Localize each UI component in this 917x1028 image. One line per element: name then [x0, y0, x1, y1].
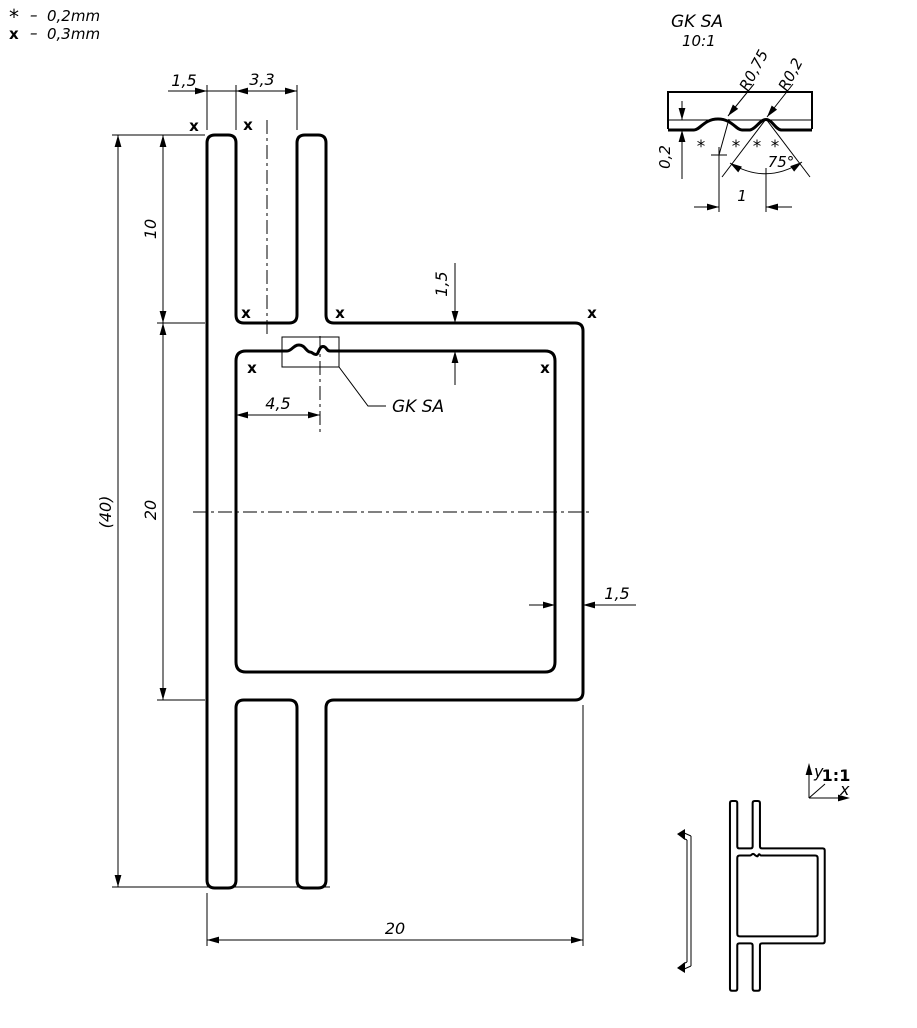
- dim-leg-height: 10: [141, 219, 160, 239]
- corner-mark: x: [189, 117, 199, 135]
- dim-detail-position: 4,5: [265, 394, 290, 413]
- dim-slot-width: 3,3: [249, 70, 274, 89]
- detail-view-scale: 10:1: [682, 32, 716, 50]
- legend-dash: –: [30, 6, 38, 24]
- corner-mark: x: [587, 304, 597, 322]
- mini-profile: [730, 801, 825, 991]
- radius-large-callout: R0,75: [725, 47, 772, 118]
- legend: * – 0,2mm x – 0,3mm: [9, 5, 100, 43]
- surface-mark: *: [732, 137, 741, 157]
- dim-rib-depth: 0,2: [656, 145, 674, 169]
- corner-mark: x: [243, 116, 253, 134]
- legend-star-value: 0,2mm: [47, 7, 100, 25]
- dim-overall-height: (40): [96, 496, 115, 529]
- cad-drawing: * – 0,2mm x – 0,3mm GK SA: [0, 0, 917, 1028]
- detail-leader-line: [339, 367, 386, 406]
- dim-rib-depth: 0,2: [656, 101, 685, 179]
- coordinate-axes: y x 1:1: [806, 762, 851, 801]
- detail-rib-profile: [668, 119, 812, 130]
- corner-mark: x: [241, 304, 251, 322]
- radius-small-label: R0,2: [775, 55, 807, 94]
- legend-dash-2: –: [30, 24, 38, 42]
- radius-large-label: R0,75: [736, 47, 772, 94]
- mini-view-scale: 1:1: [822, 766, 851, 785]
- radius-small-callout: R0,2: [764, 55, 806, 119]
- detail-strip-body: [668, 92, 812, 129]
- dim-left: (40) 10 20: [96, 135, 330, 887]
- corner-marks: x x x x x x x: [189, 116, 597, 377]
- gasket-strip: [677, 829, 691, 973]
- mini-view: y x 1:1: [677, 762, 850, 991]
- surface-mark: *: [697, 137, 706, 157]
- dim-detail-position: 4,5: [236, 394, 320, 418]
- legend-x-value: 0,3mm: [47, 25, 100, 43]
- corner-mark: x: [540, 359, 550, 377]
- dim-rib-pitch: 1: [737, 187, 747, 205]
- detail-view: GK SA 10:1 0,2 R0,75 R0,2: [656, 12, 812, 212]
- centerlines: [193, 120, 593, 512]
- radius-center-mark: [711, 119, 729, 163]
- detail-reference-label: GK SA: [392, 397, 444, 417]
- dim-right-wall: 1,5: [604, 584, 629, 603]
- legend-x-symbol: x: [9, 25, 19, 43]
- dim-box-height: 20: [141, 500, 160, 520]
- corner-mark: x: [335, 304, 345, 322]
- dim-spine-thickness: 1,5: [171, 71, 196, 90]
- drawing-sheet: * – 0,2mm x – 0,3mm GK SA: [0, 0, 917, 1028]
- dim-top: 1,5 3,3: [168, 70, 297, 130]
- surface-mark: *: [753, 137, 762, 157]
- surface-mark: *: [771, 137, 780, 157]
- detail-view-title: GK SA: [671, 12, 723, 32]
- dim-bottom: 20: [207, 705, 583, 946]
- corner-mark: x: [247, 359, 257, 377]
- dim-overall-width: 20: [385, 919, 405, 938]
- main-profile-view: GK SA 1,5 3,3 (40: [96, 70, 636, 946]
- dim-top-wall: 1,5: [432, 271, 451, 296]
